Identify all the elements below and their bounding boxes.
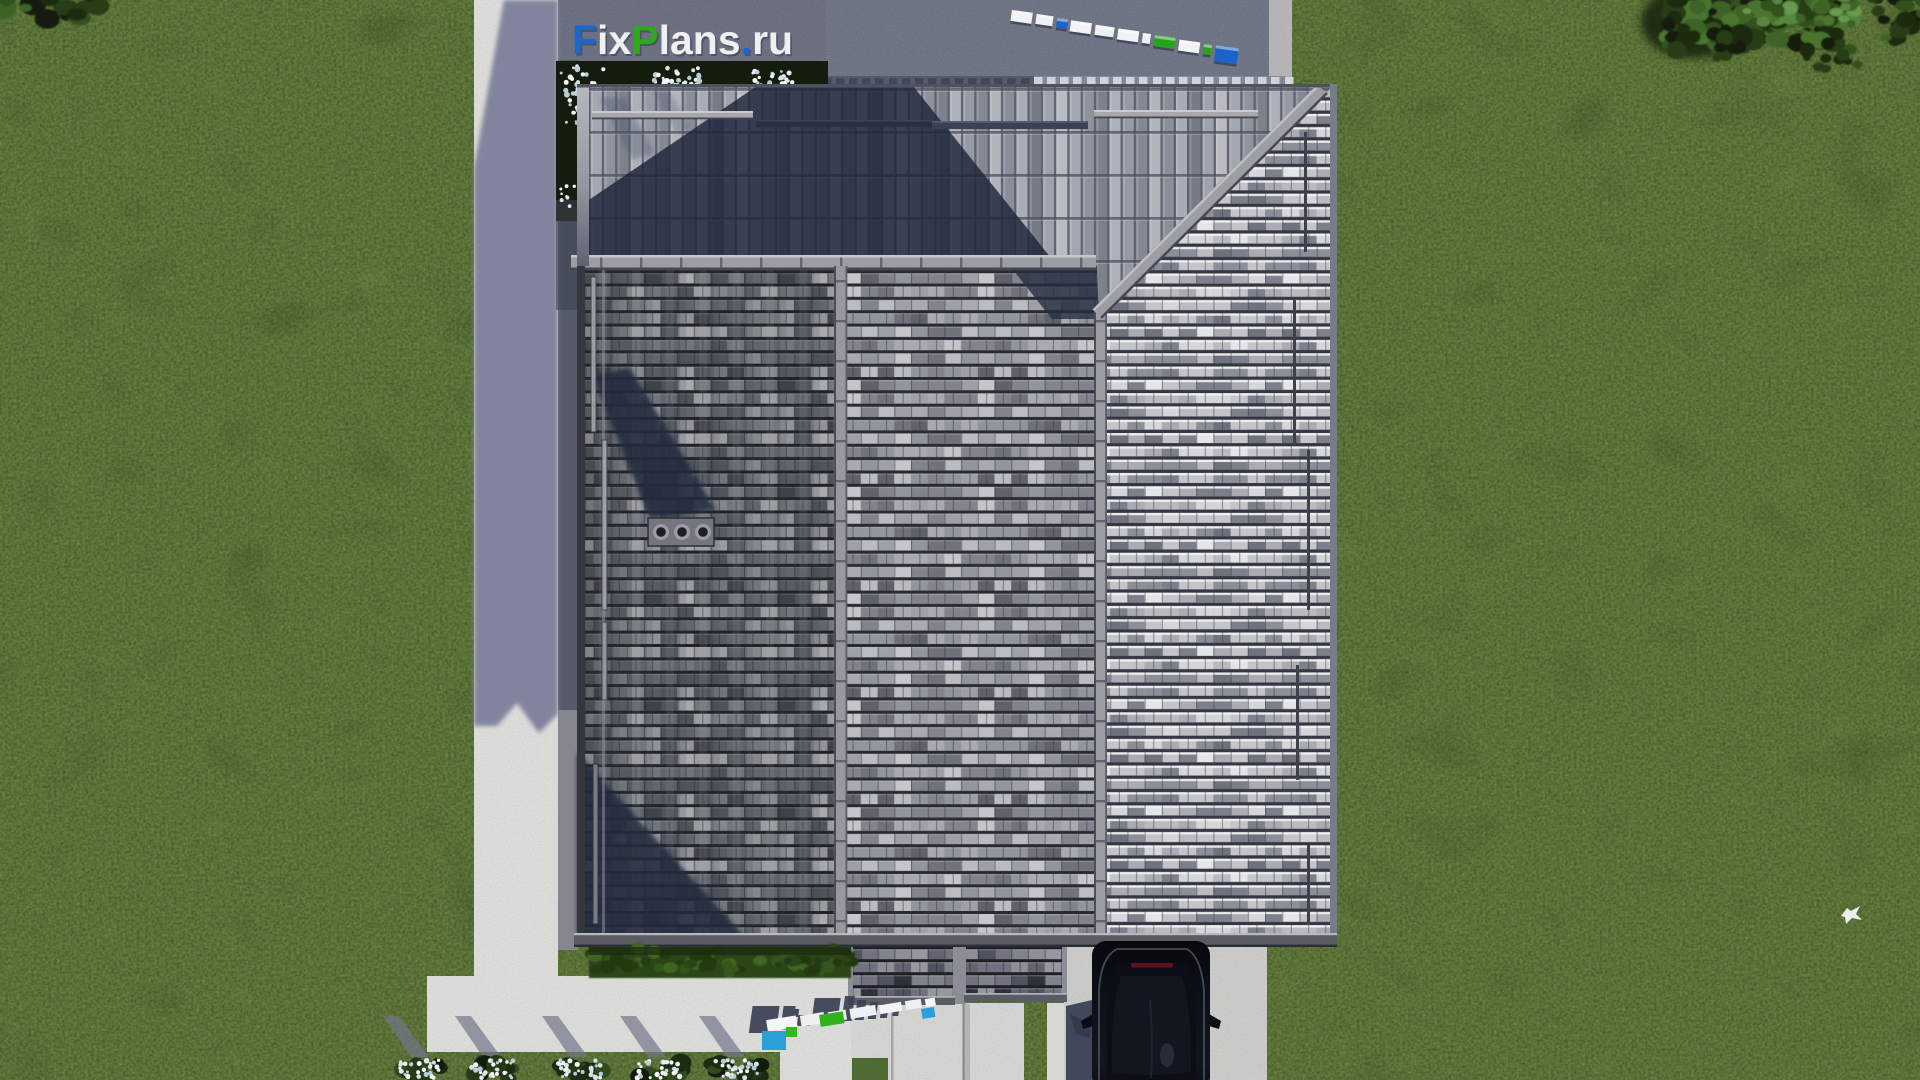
svg-text:FixPlans.ru: FixPlans.ru xyxy=(572,17,793,63)
